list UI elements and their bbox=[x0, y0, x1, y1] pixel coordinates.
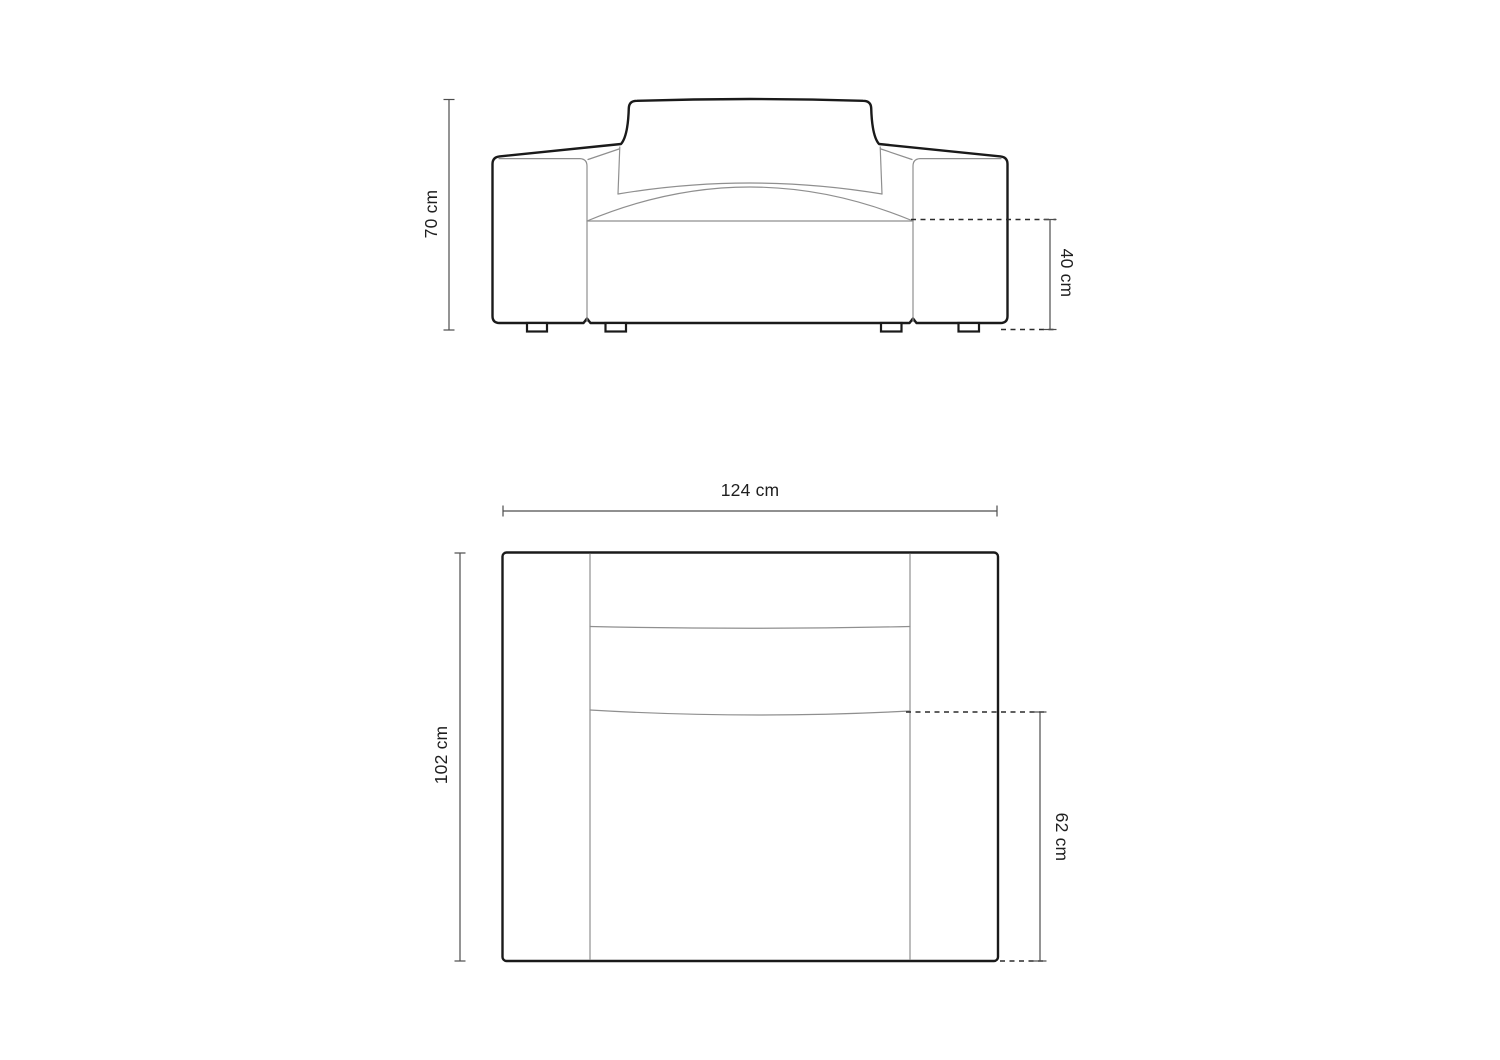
seat-height-dimension-label: 40 cm bbox=[1057, 249, 1077, 298]
width-dimension-label: 124 cm bbox=[721, 480, 780, 500]
depth-dimension-label: 102 cm bbox=[431, 726, 451, 785]
front-foot-outer-left bbox=[527, 323, 547, 332]
top-view bbox=[503, 553, 999, 962]
armchair-dimension-diagram: 70 cm 40 cm 124 cm bbox=[0, 0, 1500, 1060]
dimension-drawing-canvas: 70 cm 40 cm 124 cm bbox=[0, 0, 1500, 1060]
front-view bbox=[493, 99, 1008, 332]
front-foot-inner-right bbox=[881, 323, 902, 332]
seat-depth-dimension-label: 62 cm bbox=[1052, 813, 1072, 862]
front-view-outer-outline bbox=[493, 99, 1008, 323]
front-foot-inner-left bbox=[606, 323, 627, 332]
height-dimension-label: 70 cm bbox=[421, 190, 441, 239]
front-foot-outer-right bbox=[959, 323, 980, 332]
top-view-outline bbox=[503, 553, 999, 962]
